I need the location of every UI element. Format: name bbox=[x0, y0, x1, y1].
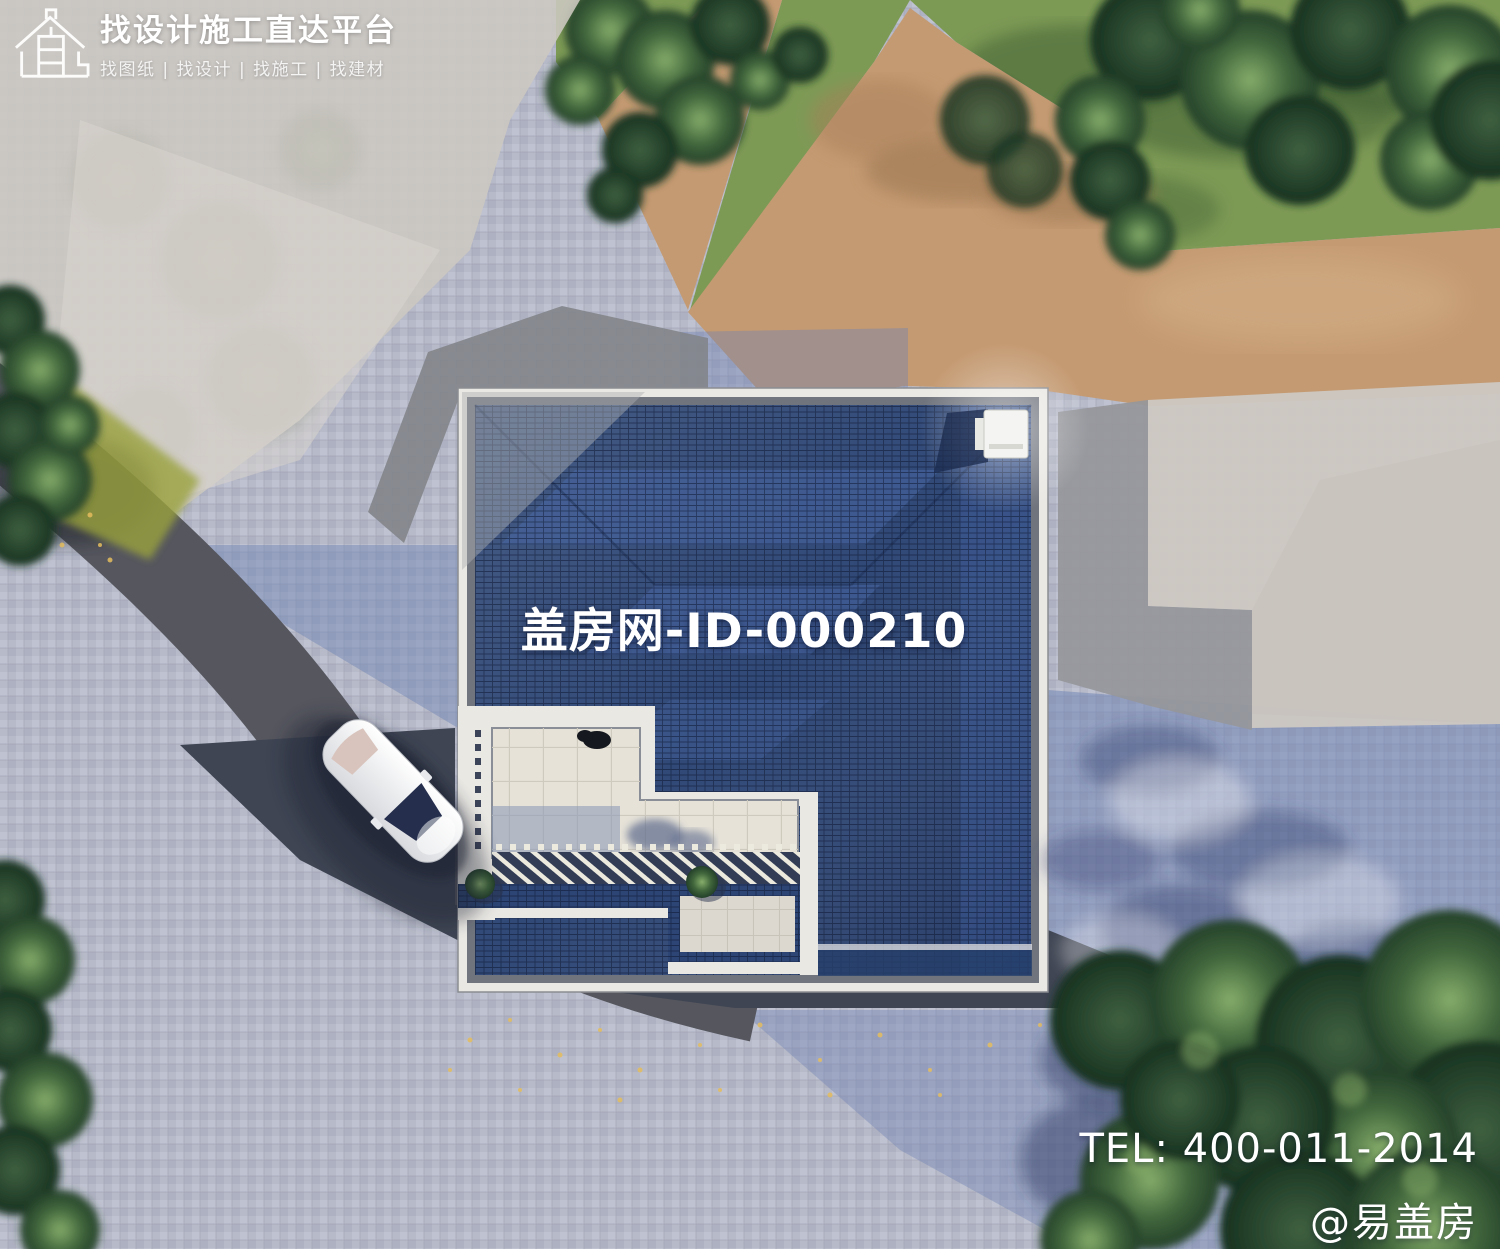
house bbox=[458, 343, 1090, 992]
brand-logo: 找设计施工直达平台 找图纸 | 找设计 | 找施工 | 找建材 bbox=[12, 6, 397, 80]
pergola bbox=[492, 852, 800, 886]
potted-plant-2 bbox=[686, 866, 718, 898]
watermark-text: 盖房网-ID-000210 bbox=[521, 592, 968, 661]
house-outline-logo-icon bbox=[12, 6, 92, 80]
brand-title: 找设计施工直达平台 bbox=[100, 12, 397, 51]
aerial-render: 找设计施工直达平台 找图纸 | 找设计 | 找施工 | 找建材 盖房网-ID-0… bbox=[0, 0, 1500, 1249]
ghost-building-right bbox=[1058, 382, 1500, 730]
social-handle: @易盖房 bbox=[1310, 1190, 1478, 1248]
brand-subtitle: 找图纸 | 找设计 | 找施工 | 找建材 bbox=[100, 55, 397, 80]
contact-tel: TEL: 400-011-2014 bbox=[1079, 1126, 1478, 1172]
roof-step-line bbox=[818, 944, 1032, 950]
